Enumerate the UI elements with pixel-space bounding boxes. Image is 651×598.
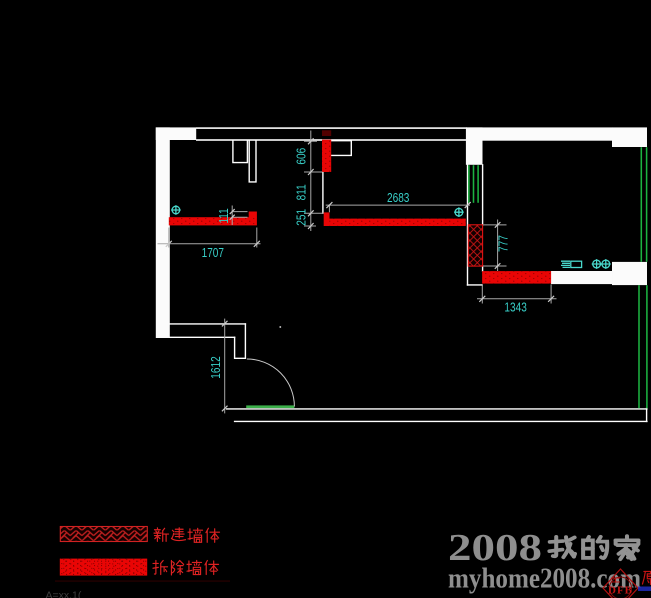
svg-text:2683: 2683: [387, 192, 409, 205]
svg-text:DFB: DFB: [608, 585, 633, 597]
svg-text:811: 811: [296, 184, 309, 200]
svg-text:777: 777: [497, 235, 510, 252]
svg-text:1343: 1343: [504, 302, 526, 315]
svg-text:606: 606: [296, 148, 309, 165]
svg-text:111: 111: [218, 208, 231, 223]
svg-text:251: 251: [296, 209, 309, 226]
svg-text:1612: 1612: [210, 356, 223, 378]
svg-text:1707: 1707: [202, 247, 224, 260]
svg-text:A=xx.1(: A=xx.1(: [46, 590, 82, 598]
